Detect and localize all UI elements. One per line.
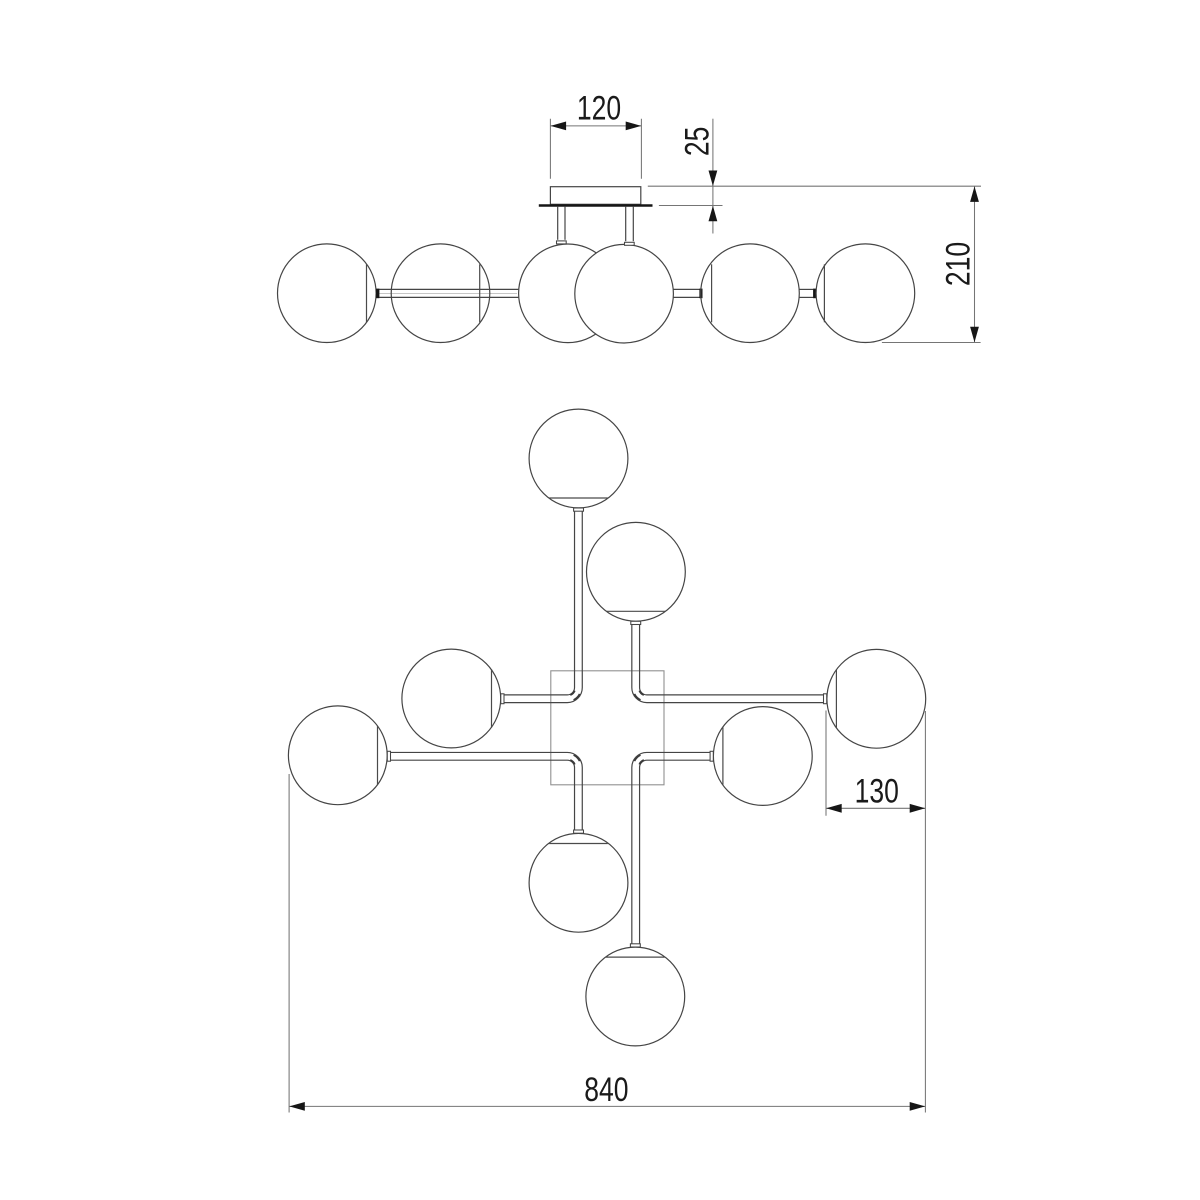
svg-text:840: 840	[584, 1071, 628, 1109]
svg-text:210: 210	[940, 242, 978, 286]
svg-text:25: 25	[678, 127, 716, 157]
svg-text:130: 130	[855, 772, 899, 810]
svg-text:120: 120	[577, 90, 621, 128]
